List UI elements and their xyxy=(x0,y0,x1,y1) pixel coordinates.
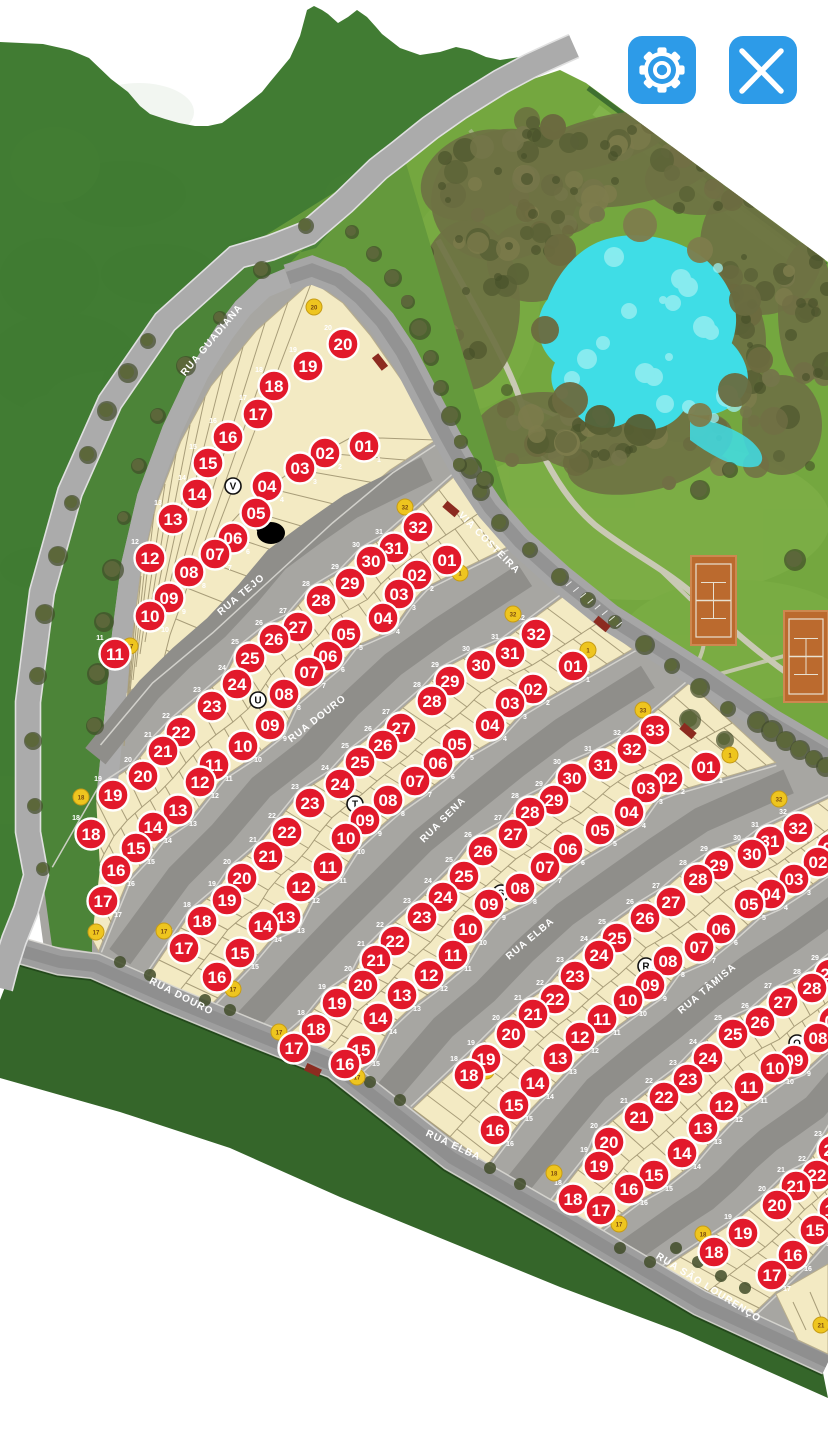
svg-text:19: 19 xyxy=(289,347,297,354)
svg-text:6: 6 xyxy=(246,549,250,556)
svg-text:14: 14 xyxy=(389,1029,397,1036)
svg-text:22: 22 xyxy=(645,1078,653,1085)
svg-text:11: 11 xyxy=(740,1078,758,1097)
svg-text:27: 27 xyxy=(382,709,390,716)
svg-text:11: 11 xyxy=(96,635,104,642)
svg-text:18: 18 xyxy=(265,377,284,396)
svg-text:07: 07 xyxy=(690,938,709,957)
svg-text:22: 22 xyxy=(655,1088,674,1107)
svg-text:15: 15 xyxy=(525,1116,533,1123)
svg-text:18: 18 xyxy=(564,1190,583,1209)
svg-text:29: 29 xyxy=(441,672,460,691)
svg-text:24: 24 xyxy=(218,665,226,672)
svg-text:3: 3 xyxy=(659,799,663,806)
svg-text:08: 08 xyxy=(379,791,398,810)
svg-text:21: 21 xyxy=(144,732,152,739)
svg-text:20: 20 xyxy=(134,767,153,786)
svg-text:10: 10 xyxy=(619,991,638,1010)
svg-text:16: 16 xyxy=(107,861,126,880)
svg-text:12: 12 xyxy=(312,898,320,905)
svg-text:26: 26 xyxy=(374,736,393,755)
svg-text:22: 22 xyxy=(162,713,170,720)
svg-text:3: 3 xyxy=(523,714,527,721)
svg-text:26: 26 xyxy=(464,832,472,839)
svg-text:17: 17 xyxy=(763,1266,782,1285)
svg-text:11: 11 xyxy=(444,946,462,965)
svg-text:11: 11 xyxy=(319,858,337,877)
svg-text:15: 15 xyxy=(806,1221,825,1240)
svg-text:21: 21 xyxy=(357,941,365,948)
svg-text:19: 19 xyxy=(580,1147,588,1154)
svg-text:25: 25 xyxy=(455,867,474,886)
svg-text:06: 06 xyxy=(559,840,578,859)
svg-text:32: 32 xyxy=(510,613,517,619)
svg-text:6: 6 xyxy=(451,774,455,781)
svg-text:16: 16 xyxy=(804,1266,812,1273)
svg-text:5: 5 xyxy=(359,645,363,652)
svg-text:01: 01 xyxy=(438,551,457,570)
svg-text:18: 18 xyxy=(705,1243,724,1262)
svg-text:29: 29 xyxy=(341,574,360,593)
svg-text:07: 07 xyxy=(536,858,555,877)
svg-text:5: 5 xyxy=(762,915,766,922)
svg-text:27: 27 xyxy=(504,825,523,844)
svg-text:31: 31 xyxy=(501,644,520,663)
svg-text:19: 19 xyxy=(208,881,216,888)
svg-text:05: 05 xyxy=(247,504,266,523)
svg-text:6: 6 xyxy=(341,667,345,674)
svg-text:8: 8 xyxy=(401,811,405,818)
svg-text:02: 02 xyxy=(316,444,335,463)
svg-text:32: 32 xyxy=(402,506,409,512)
svg-text:02: 02 xyxy=(809,853,828,872)
svg-text:10: 10 xyxy=(479,940,487,947)
svg-text:26: 26 xyxy=(626,899,634,906)
svg-text:23: 23 xyxy=(566,967,585,986)
svg-text:26: 26 xyxy=(751,1013,770,1032)
svg-text:01: 01 xyxy=(355,437,374,456)
svg-text:17: 17 xyxy=(249,405,268,424)
svg-text:31: 31 xyxy=(385,539,404,558)
svg-text:14: 14 xyxy=(254,917,273,936)
svg-text:20: 20 xyxy=(334,335,353,354)
svg-text:2: 2 xyxy=(338,464,342,471)
svg-text:11: 11 xyxy=(760,1098,768,1105)
svg-text:08: 08 xyxy=(511,879,530,898)
svg-text:13: 13 xyxy=(714,1139,722,1146)
svg-text:17: 17 xyxy=(114,912,122,919)
svg-text:17: 17 xyxy=(161,930,168,936)
svg-text:5: 5 xyxy=(613,841,617,848)
svg-text:12: 12 xyxy=(591,1048,599,1055)
svg-text:20: 20 xyxy=(311,306,318,312)
svg-text:9: 9 xyxy=(378,831,382,838)
svg-text:18: 18 xyxy=(255,367,263,374)
svg-text:30: 30 xyxy=(362,552,381,571)
svg-text:16: 16 xyxy=(620,1180,639,1199)
svg-text:10: 10 xyxy=(766,1059,785,1078)
svg-text:28: 28 xyxy=(302,581,310,588)
svg-text:19: 19 xyxy=(104,786,123,805)
svg-text:20: 20 xyxy=(502,1025,521,1044)
svg-text:4: 4 xyxy=(784,905,788,912)
svg-text:18: 18 xyxy=(193,912,212,931)
svg-text:18: 18 xyxy=(78,796,85,802)
svg-text:08: 08 xyxy=(180,563,199,582)
svg-text:12: 12 xyxy=(191,773,210,792)
svg-text:05: 05 xyxy=(448,735,467,754)
svg-text:20: 20 xyxy=(768,1196,787,1215)
svg-text:08: 08 xyxy=(809,1029,828,1048)
svg-text:31: 31 xyxy=(751,822,759,829)
svg-text:14: 14 xyxy=(144,818,163,837)
svg-text:8: 8 xyxy=(681,972,685,979)
svg-text:30: 30 xyxy=(733,835,741,842)
svg-text:8: 8 xyxy=(202,583,206,590)
svg-text:03: 03 xyxy=(785,870,804,889)
svg-text:22: 22 xyxy=(268,813,276,820)
svg-text:21: 21 xyxy=(154,742,173,761)
svg-text:14: 14 xyxy=(164,838,172,845)
svg-text:7: 7 xyxy=(322,683,326,690)
svg-text:23: 23 xyxy=(291,784,299,791)
svg-text:33: 33 xyxy=(640,709,647,715)
svg-text:10: 10 xyxy=(234,737,253,756)
svg-text:31: 31 xyxy=(491,634,499,641)
svg-text:17: 17 xyxy=(592,1201,611,1220)
svg-text:13: 13 xyxy=(297,928,305,935)
svg-text:14: 14 xyxy=(526,1074,545,1093)
svg-text:12: 12 xyxy=(420,966,439,985)
svg-text:03: 03 xyxy=(501,694,520,713)
svg-text:11: 11 xyxy=(225,776,233,783)
svg-text:16: 16 xyxy=(336,1055,355,1074)
svg-text:26: 26 xyxy=(741,1003,749,1010)
svg-text:09: 09 xyxy=(261,716,280,735)
svg-text:12: 12 xyxy=(571,1028,590,1047)
svg-text:22: 22 xyxy=(376,922,384,929)
svg-text:32: 32 xyxy=(779,809,787,816)
svg-text:11: 11 xyxy=(339,878,347,885)
svg-text:15: 15 xyxy=(199,454,218,473)
svg-text:2: 2 xyxy=(430,586,434,593)
svg-text:17: 17 xyxy=(285,1039,304,1058)
svg-text:32: 32 xyxy=(789,819,808,838)
svg-text:14: 14 xyxy=(673,1144,692,1163)
svg-text:9: 9 xyxy=(502,915,506,922)
svg-text:17: 17 xyxy=(93,931,100,937)
svg-text:21: 21 xyxy=(630,1108,649,1127)
svg-text:31: 31 xyxy=(375,529,383,536)
svg-text:23: 23 xyxy=(679,1070,698,1089)
svg-text:07: 07 xyxy=(206,545,225,564)
svg-text:12: 12 xyxy=(735,1117,743,1124)
svg-text:30: 30 xyxy=(563,769,582,788)
svg-text:12: 12 xyxy=(211,793,219,800)
svg-text:13: 13 xyxy=(694,1119,713,1138)
svg-text:18: 18 xyxy=(307,1020,326,1039)
svg-text:16: 16 xyxy=(784,1246,803,1265)
svg-text:15: 15 xyxy=(231,944,250,963)
svg-text:26: 26 xyxy=(255,620,263,627)
svg-text:32: 32 xyxy=(776,798,783,804)
svg-text:29: 29 xyxy=(331,564,339,571)
svg-text:3: 3 xyxy=(807,890,811,897)
svg-text:25: 25 xyxy=(724,1025,743,1044)
svg-text:29: 29 xyxy=(700,846,708,853)
svg-text:28: 28 xyxy=(793,969,801,976)
svg-text:27: 27 xyxy=(662,893,681,912)
svg-text:1: 1 xyxy=(719,778,723,785)
svg-text:29: 29 xyxy=(545,791,564,810)
svg-text:9: 9 xyxy=(807,1071,811,1078)
svg-text:11: 11 xyxy=(613,1030,621,1037)
svg-text:26: 26 xyxy=(265,630,284,649)
svg-text:16: 16 xyxy=(127,881,135,888)
svg-text:22: 22 xyxy=(546,990,565,1009)
svg-text:11: 11 xyxy=(464,966,472,973)
svg-text:20: 20 xyxy=(758,1186,766,1193)
svg-text:12: 12 xyxy=(131,539,139,546)
svg-text:3: 3 xyxy=(412,605,416,612)
svg-text:8: 8 xyxy=(533,899,537,906)
svg-text:10: 10 xyxy=(639,1011,647,1018)
svg-text:21: 21 xyxy=(787,1177,806,1196)
svg-text:13: 13 xyxy=(164,510,183,529)
svg-text:20: 20 xyxy=(590,1123,598,1130)
svg-text:21: 21 xyxy=(524,1005,543,1024)
svg-text:01: 01 xyxy=(564,657,583,676)
svg-text:30: 30 xyxy=(462,646,470,653)
svg-text:26: 26 xyxy=(364,726,372,733)
svg-text:23: 23 xyxy=(403,898,411,905)
svg-text:19: 19 xyxy=(590,1157,609,1176)
svg-text:17: 17 xyxy=(239,395,247,402)
svg-text:30: 30 xyxy=(743,845,762,864)
svg-text:U: U xyxy=(254,696,261,707)
svg-text:18: 18 xyxy=(460,1066,479,1085)
svg-text:32: 32 xyxy=(409,518,428,537)
svg-text:17: 17 xyxy=(276,1031,283,1037)
svg-text:28: 28 xyxy=(521,803,540,822)
svg-text:2: 2 xyxy=(681,789,685,796)
svg-text:13: 13 xyxy=(413,1006,421,1013)
svg-text:25: 25 xyxy=(231,639,239,646)
svg-text:18: 18 xyxy=(297,1010,305,1017)
svg-text:14: 14 xyxy=(178,475,186,482)
svg-text:24: 24 xyxy=(331,775,350,794)
svg-text:24: 24 xyxy=(228,675,247,694)
svg-text:27: 27 xyxy=(774,993,793,1012)
svg-text:16: 16 xyxy=(208,968,227,987)
svg-text:01: 01 xyxy=(697,758,716,777)
svg-text:14: 14 xyxy=(188,485,207,504)
svg-text:13: 13 xyxy=(569,1069,577,1076)
svg-text:24: 24 xyxy=(699,1049,718,1068)
svg-text:27: 27 xyxy=(279,608,287,615)
svg-text:V: V xyxy=(230,482,237,493)
svg-text:20: 20 xyxy=(600,1133,619,1152)
svg-text:28: 28 xyxy=(679,860,687,867)
svg-text:20: 20 xyxy=(492,1015,500,1022)
svg-text:24: 24 xyxy=(434,888,453,907)
svg-text:29: 29 xyxy=(535,781,543,788)
svg-text:12: 12 xyxy=(292,878,311,897)
svg-text:7: 7 xyxy=(712,958,716,965)
svg-text:12: 12 xyxy=(715,1097,734,1116)
svg-text:1: 1 xyxy=(377,457,381,464)
svg-text:21: 21 xyxy=(259,847,278,866)
svg-text:17: 17 xyxy=(175,939,194,958)
svg-text:9: 9 xyxy=(663,996,667,1003)
svg-text:06: 06 xyxy=(712,920,731,939)
svg-text:25: 25 xyxy=(341,743,349,750)
svg-text:06: 06 xyxy=(429,754,448,773)
svg-text:21: 21 xyxy=(620,1098,628,1105)
svg-text:13: 13 xyxy=(549,1049,568,1068)
svg-text:20: 20 xyxy=(324,325,332,332)
svg-text:32: 32 xyxy=(613,730,621,737)
svg-text:02: 02 xyxy=(524,680,543,699)
svg-text:20: 20 xyxy=(233,869,252,888)
svg-text:17: 17 xyxy=(616,1223,623,1229)
svg-text:04: 04 xyxy=(481,716,500,735)
svg-text:9: 9 xyxy=(182,609,186,616)
svg-text:27: 27 xyxy=(494,815,502,822)
svg-text:19: 19 xyxy=(724,1214,732,1221)
svg-text:23: 23 xyxy=(669,1060,677,1067)
svg-text:24: 24 xyxy=(689,1039,697,1046)
svg-text:22: 22 xyxy=(386,932,405,951)
svg-text:4: 4 xyxy=(396,629,400,636)
svg-text:08: 08 xyxy=(275,685,294,704)
svg-text:5: 5 xyxy=(470,755,474,762)
svg-text:7: 7 xyxy=(428,792,432,799)
svg-text:18: 18 xyxy=(183,902,191,909)
svg-text:4: 4 xyxy=(280,497,284,504)
svg-text:27: 27 xyxy=(652,883,660,890)
svg-text:28: 28 xyxy=(423,692,442,711)
svg-text:21: 21 xyxy=(777,1167,785,1174)
svg-text:29: 29 xyxy=(811,955,819,962)
svg-text:6: 6 xyxy=(581,860,585,867)
svg-text:16: 16 xyxy=(640,1200,648,1207)
svg-text:03: 03 xyxy=(637,779,656,798)
svg-text:18: 18 xyxy=(82,825,101,844)
svg-text:28: 28 xyxy=(511,793,519,800)
svg-text:20: 20 xyxy=(223,859,231,866)
svg-text:16: 16 xyxy=(209,418,217,425)
svg-text:14: 14 xyxy=(693,1164,701,1171)
svg-text:4: 4 xyxy=(642,823,646,830)
svg-text:07: 07 xyxy=(300,663,319,682)
svg-text:22: 22 xyxy=(798,1156,806,1163)
svg-text:21: 21 xyxy=(818,1324,825,1330)
svg-text:10: 10 xyxy=(786,1079,794,1086)
svg-text:15: 15 xyxy=(645,1166,664,1185)
svg-text:10: 10 xyxy=(459,920,478,939)
svg-text:15: 15 xyxy=(665,1186,673,1193)
svg-text:19: 19 xyxy=(318,984,326,991)
svg-text:12: 12 xyxy=(440,986,448,993)
svg-text:15: 15 xyxy=(251,964,259,971)
svg-text:10: 10 xyxy=(337,829,356,848)
svg-text:15: 15 xyxy=(505,1096,524,1115)
svg-text:03: 03 xyxy=(390,585,409,604)
svg-text:30: 30 xyxy=(553,759,561,766)
svg-text:3: 3 xyxy=(313,479,317,486)
svg-text:10: 10 xyxy=(254,757,262,764)
svg-text:21: 21 xyxy=(249,837,257,844)
svg-text:19: 19 xyxy=(328,994,347,1013)
svg-text:14: 14 xyxy=(546,1094,554,1101)
svg-text:13: 13 xyxy=(169,801,188,820)
svg-text:15: 15 xyxy=(189,444,197,451)
svg-text:14: 14 xyxy=(274,937,282,944)
svg-text:03: 03 xyxy=(291,459,310,478)
svg-text:23: 23 xyxy=(413,908,432,927)
svg-text:11: 11 xyxy=(106,645,124,664)
svg-text:13: 13 xyxy=(393,986,412,1005)
svg-text:10: 10 xyxy=(141,607,160,626)
svg-text:15: 15 xyxy=(147,859,155,866)
svg-text:16: 16 xyxy=(506,1141,514,1148)
svg-text:19: 19 xyxy=(299,357,318,376)
svg-text:8: 8 xyxy=(297,705,301,712)
svg-text:33: 33 xyxy=(646,721,665,740)
svg-text:25: 25 xyxy=(241,649,260,668)
svg-text:12: 12 xyxy=(141,549,160,568)
svg-text:13: 13 xyxy=(189,821,197,828)
svg-text:10: 10 xyxy=(357,849,365,856)
svg-text:22: 22 xyxy=(536,980,544,987)
svg-text:28: 28 xyxy=(312,591,331,610)
svg-text:22: 22 xyxy=(278,823,297,842)
svg-text:25: 25 xyxy=(351,753,370,772)
svg-text:26: 26 xyxy=(636,909,655,928)
svg-text:27: 27 xyxy=(289,618,308,637)
svg-text:15: 15 xyxy=(372,1061,380,1068)
svg-text:32: 32 xyxy=(623,740,642,759)
svg-text:28: 28 xyxy=(689,870,708,889)
svg-text:19: 19 xyxy=(734,1224,753,1243)
svg-text:17: 17 xyxy=(94,892,113,911)
svg-text:07: 07 xyxy=(406,772,425,791)
svg-text:1: 1 xyxy=(586,677,590,684)
svg-text:17: 17 xyxy=(783,1286,791,1293)
svg-text:28: 28 xyxy=(803,979,822,998)
svg-text:32: 32 xyxy=(527,625,546,644)
svg-text:04: 04 xyxy=(620,803,639,822)
svg-text:24: 24 xyxy=(424,878,432,885)
svg-text:24: 24 xyxy=(590,946,609,965)
svg-text:21: 21 xyxy=(367,951,386,970)
svg-text:29: 29 xyxy=(431,662,439,669)
svg-text:23: 23 xyxy=(193,687,201,694)
svg-text:28: 28 xyxy=(413,682,421,689)
svg-text:18: 18 xyxy=(72,815,80,822)
svg-text:20: 20 xyxy=(344,966,352,973)
svg-text:04: 04 xyxy=(258,477,277,496)
svg-text:31: 31 xyxy=(594,756,613,775)
svg-text:24: 24 xyxy=(580,936,588,943)
svg-text:2: 2 xyxy=(546,700,550,707)
svg-text:23: 23 xyxy=(203,697,222,716)
svg-text:23: 23 xyxy=(556,957,564,964)
svg-text:09: 09 xyxy=(641,976,660,995)
svg-text:13: 13 xyxy=(154,500,162,507)
svg-text:25: 25 xyxy=(445,857,453,864)
